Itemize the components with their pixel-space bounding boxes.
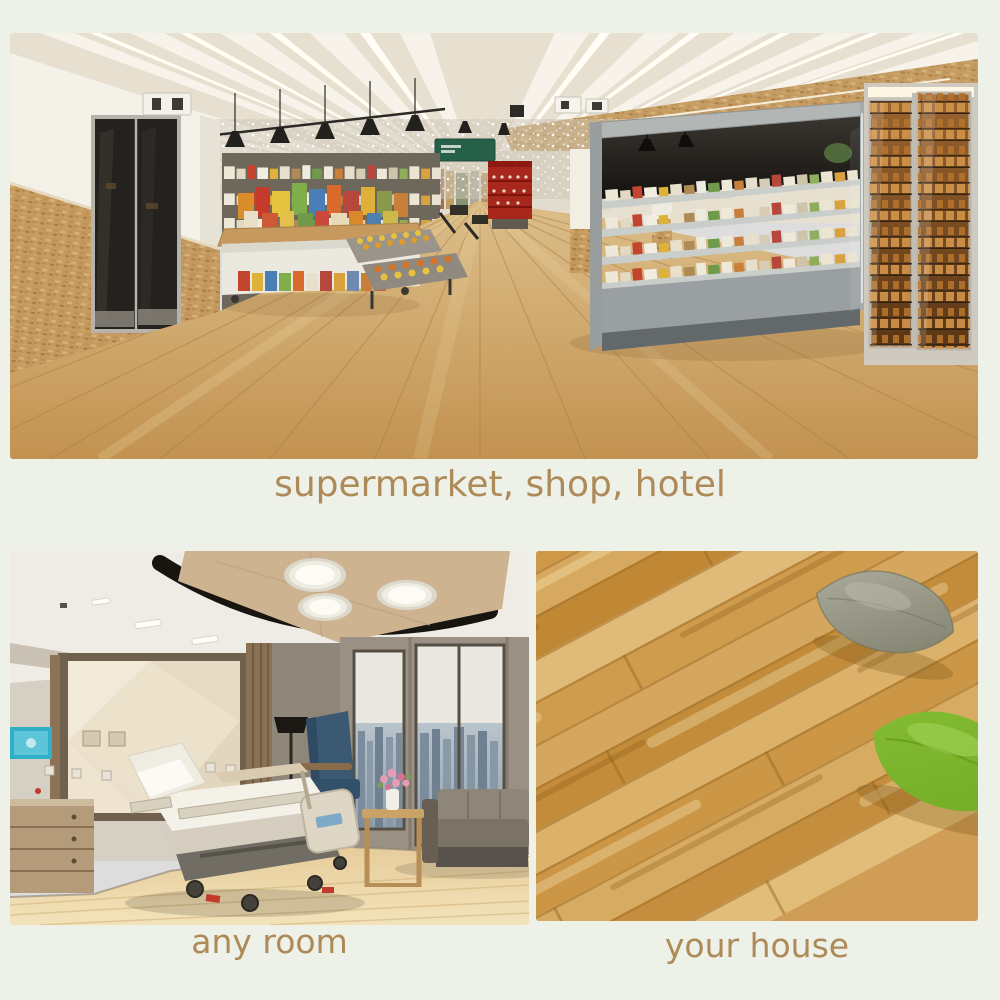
supermarket-photo (10, 33, 978, 459)
entrance-door (93, 93, 191, 331)
vase (386, 789, 399, 810)
caption-any-room: any room (10, 922, 529, 961)
floor-pillows-scene (536, 551, 978, 921)
freezer-doors (864, 83, 978, 365)
door-sign (143, 93, 191, 115)
patient-room-photo (10, 551, 529, 925)
supermarket-scene (10, 33, 978, 459)
flooring-collage-page: supermarket, shop, hotel (0, 0, 1000, 1000)
patient-room-scene (10, 551, 529, 925)
storage-cabinet (10, 799, 94, 893)
caption-your-house: your house (536, 926, 978, 965)
red-promo-stand (488, 161, 532, 229)
caption-supermarket: supermarket, shop, hotel (0, 464, 1000, 505)
tv-screen (10, 727, 52, 759)
floor-pillows-photo (536, 551, 978, 921)
